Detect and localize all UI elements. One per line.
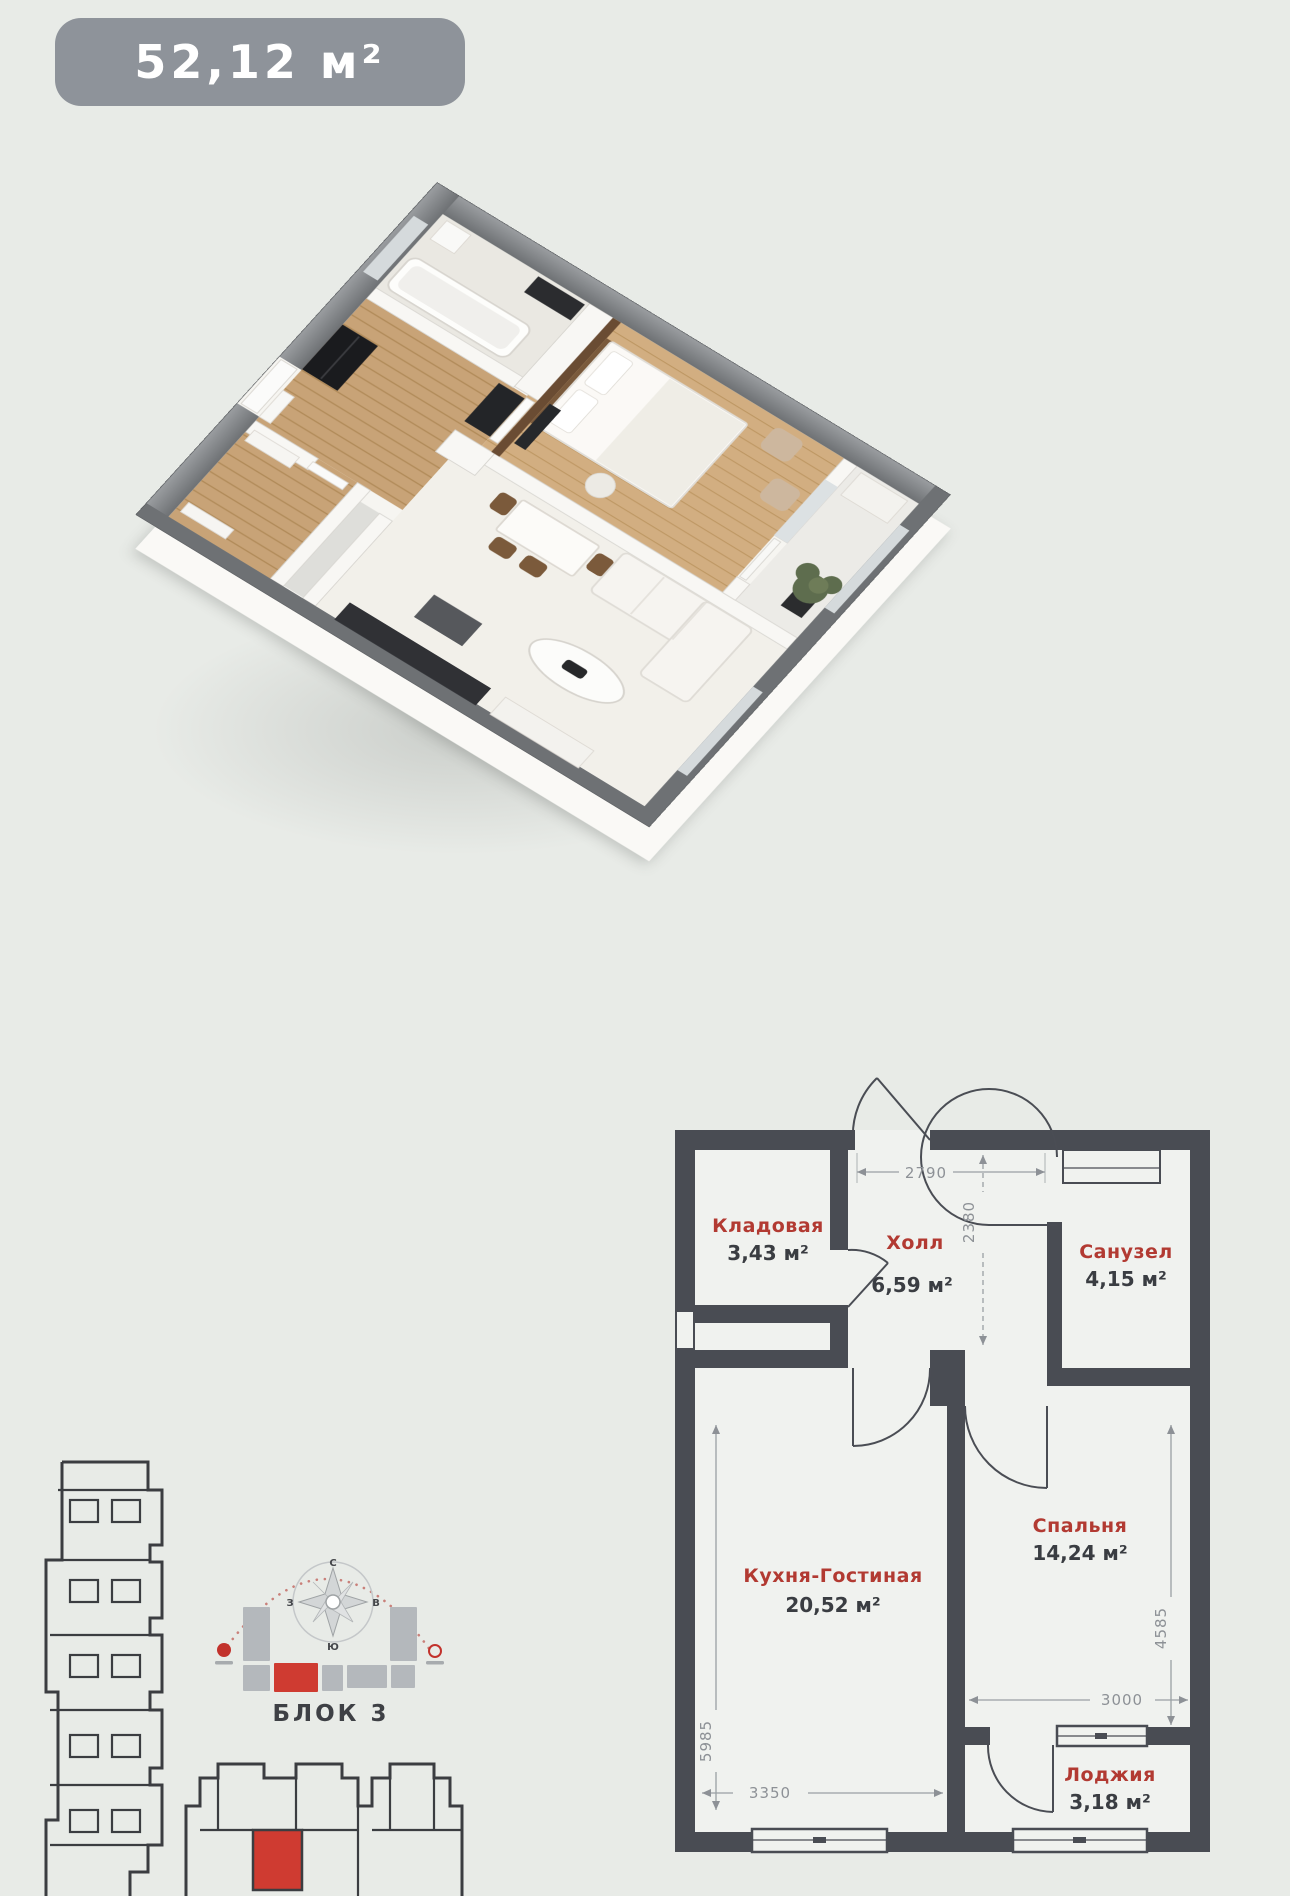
- highlighted-unit: [253, 1830, 302, 1890]
- area-badge: 52,12 м²: [55, 18, 465, 106]
- compass-west: З: [286, 1598, 293, 1609]
- room-label-bedroom: Спальня: [1033, 1515, 1128, 1537]
- dim-3350: 3350: [749, 1784, 791, 1802]
- dim-3000: 3000: [1101, 1691, 1143, 1709]
- compass-east: В: [372, 1598, 380, 1609]
- room-area-hall: 6,59 м²: [871, 1273, 952, 1297]
- dim-4585: 4585: [1152, 1607, 1170, 1649]
- highlighted-block: [274, 1663, 318, 1692]
- left-building-outline: [46, 1462, 162, 1896]
- block-label: БЛОК 3: [273, 1701, 390, 1727]
- room-label-bathroom: Санузел: [1079, 1241, 1173, 1263]
- room-area-bedroom: 14,24 м²: [1032, 1541, 1127, 1565]
- room-area-storage: 3,43 м²: [727, 1241, 808, 1265]
- sunrise-caption: [426, 1661, 444, 1665]
- room-label-storage: Кладовая: [712, 1215, 824, 1237]
- wall-niche: [677, 1312, 693, 1348]
- floor-plan-2d: 2790 2380 3350 5985 3000 4585 Кладовая 3…: [640, 1050, 1290, 1896]
- block-plan: С В Ю З БЛОК 3: [30, 1430, 470, 1896]
- dim-5985: 5985: [697, 1720, 715, 1762]
- room-area-kitchen-living: 20,52 м²: [785, 1593, 880, 1617]
- page: 52,12 м²: [0, 0, 1290, 1896]
- bottom-building-outline: [186, 1764, 462, 1896]
- room-label-kitchen-living: Кухня-Гостиная: [743, 1565, 922, 1587]
- sunset-caption: [215, 1661, 233, 1665]
- room-label-hall: Холл: [886, 1232, 944, 1254]
- dim-2380: 2380: [960, 1201, 978, 1243]
- dim-2790: 2790: [905, 1164, 947, 1182]
- room-label-loggia: Лоджия: [1064, 1764, 1156, 1786]
- room-area-bathroom: 4,15 м²: [1085, 1267, 1166, 1291]
- compass-rose-icon: С В Ю З: [286, 1558, 379, 1653]
- bathroom-window: [1063, 1150, 1160, 1183]
- room-area-loggia: 3,18 м²: [1069, 1790, 1150, 1814]
- compass-south: Ю: [327, 1642, 339, 1653]
- sunrise-circle-icon: [429, 1645, 441, 1657]
- compass-north: С: [329, 1558, 336, 1569]
- sunset-dot-icon: [217, 1643, 231, 1657]
- area-badge-label: 52,12 м²: [134, 35, 385, 89]
